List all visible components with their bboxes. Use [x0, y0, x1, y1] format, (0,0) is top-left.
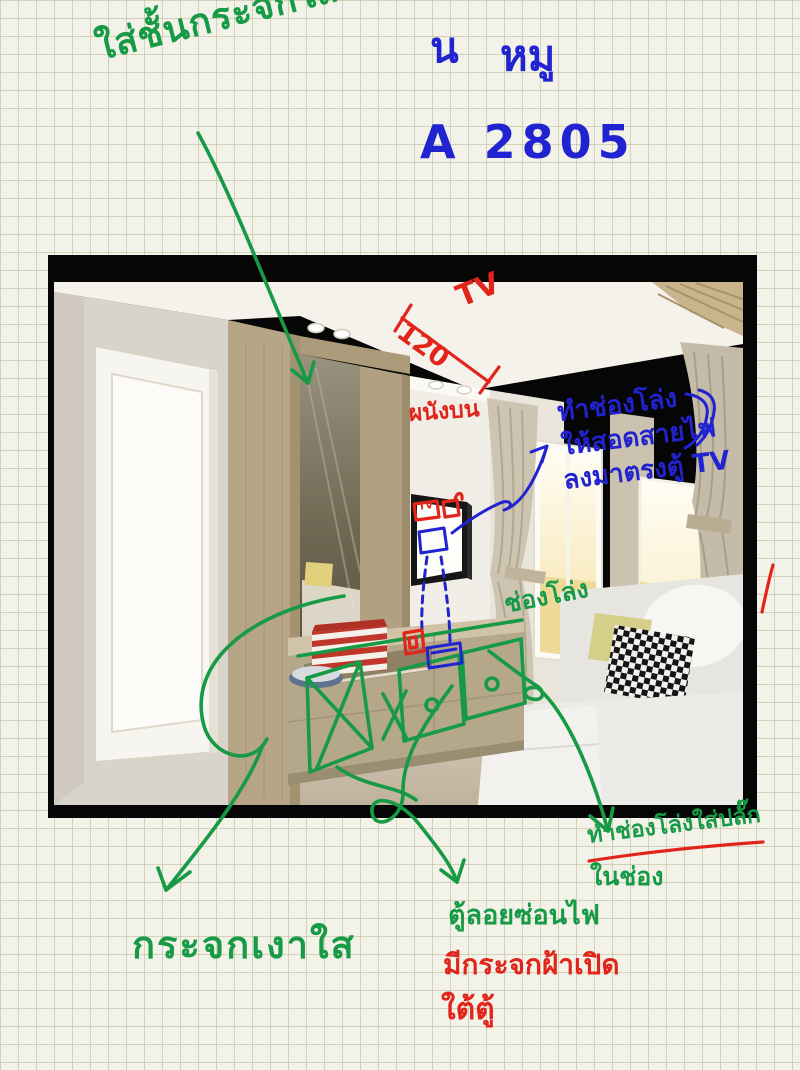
note-shelf-glass: ใส่ชั้นกระจกใส [92, 0, 343, 68]
door [95, 346, 218, 762]
note-mirror: กระจกเงาใส [132, 926, 356, 966]
note-name-prefix: น [430, 26, 459, 70]
red-margin-slash [762, 565, 773, 612]
note-floating-cabinet: ตู้ลอยซ่อนไฟ [448, 902, 600, 930]
note-plug-line2: ในช่อง [590, 864, 664, 890]
note-tv-box-label: TV [418, 501, 434, 513]
note-unit-code: A 2805 [420, 118, 636, 166]
note-frosted-line1: มีกระจกฝ้าเปิด [443, 950, 620, 979]
grid-paper: ใส่ชั้นกระจกใส น หมู A 2805 TV 120 ผนังบ… [0, 0, 800, 1070]
interior-render-photo [54, 282, 743, 805]
note-wall: ผนังบน [408, 397, 480, 426]
note-frosted-line2: ใต้ตู้ [441, 994, 495, 1026]
note-name: หมู [500, 34, 555, 78]
